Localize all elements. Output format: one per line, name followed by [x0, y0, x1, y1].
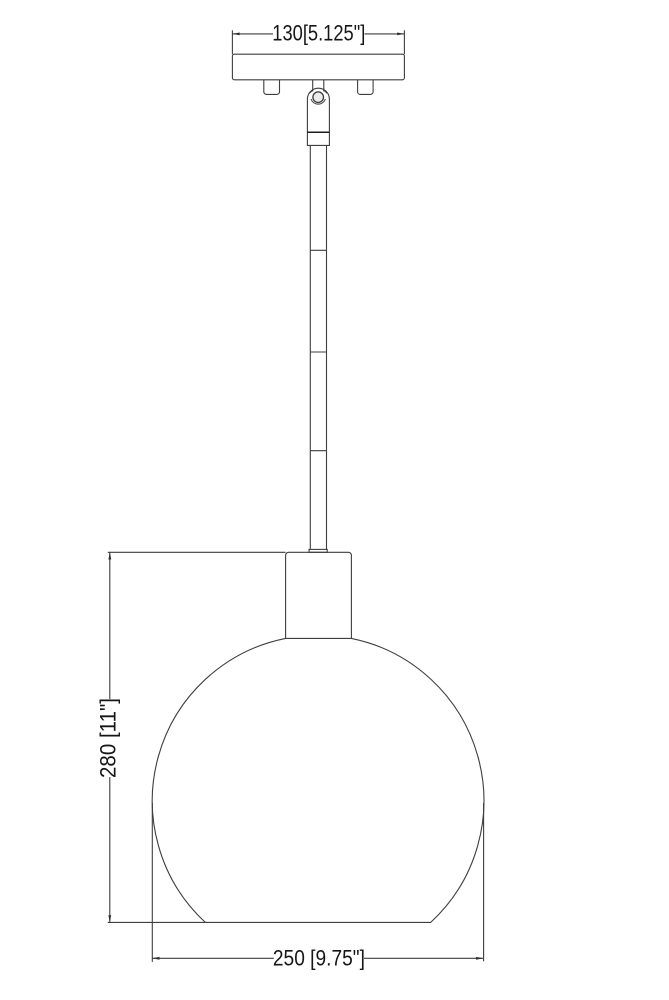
svg-text:130[5.125"]: 130[5.125"]	[272, 21, 365, 46]
svg-text:280 [11"]: 280 [11"]	[95, 698, 120, 778]
svg-text:250 [9.75"]: 250 [9.75"]	[273, 945, 365, 970]
